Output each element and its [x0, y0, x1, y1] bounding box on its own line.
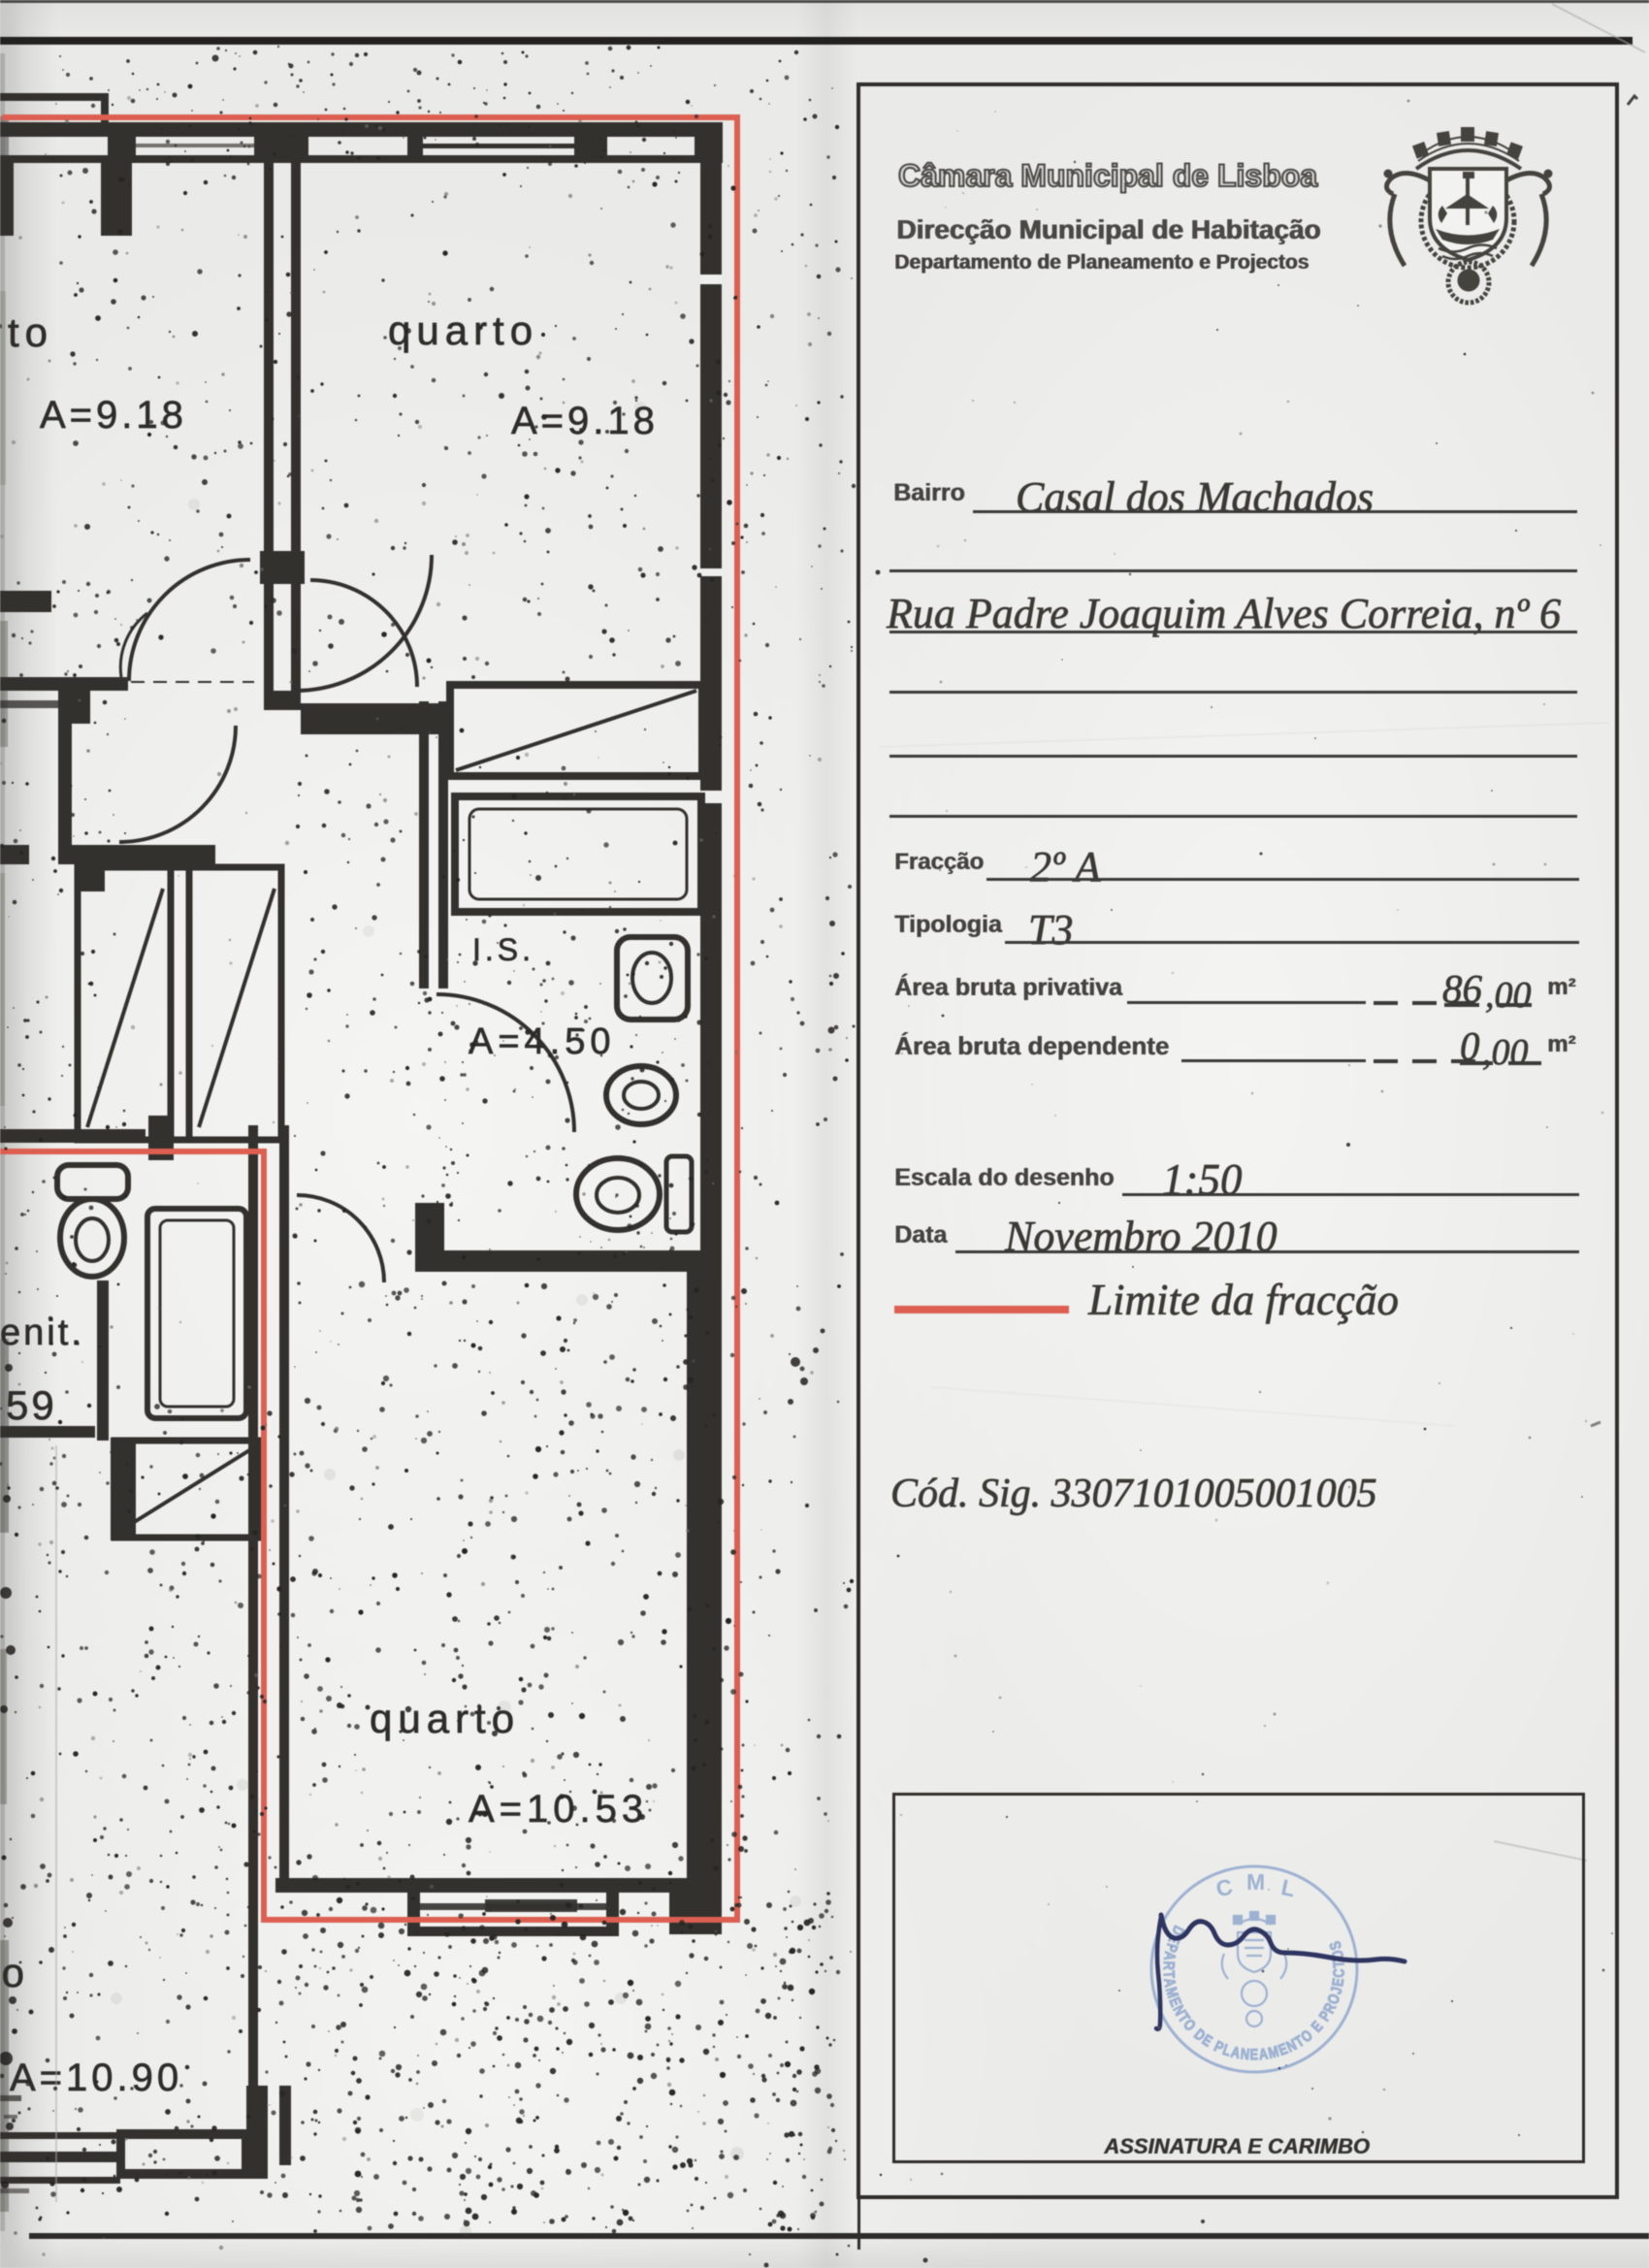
- svg-text:A=10.53: A=10.53: [469, 1788, 648, 1831]
- svg-text:A=9.18: A=9.18: [40, 394, 187, 437]
- svg-text:I.S.: I.S.: [472, 932, 534, 967]
- svg-text:to: to: [0, 1950, 30, 1995]
- svg-text:A=10.90: A=10.90: [10, 2057, 182, 2099]
- svg-text:A=4.50: A=4.50: [469, 1021, 616, 1062]
- svg-text:rto: rto: [0, 309, 53, 355]
- svg-text:zenit.: zenit.: [0, 1312, 84, 1353]
- svg-text:59: 59: [6, 1382, 57, 1428]
